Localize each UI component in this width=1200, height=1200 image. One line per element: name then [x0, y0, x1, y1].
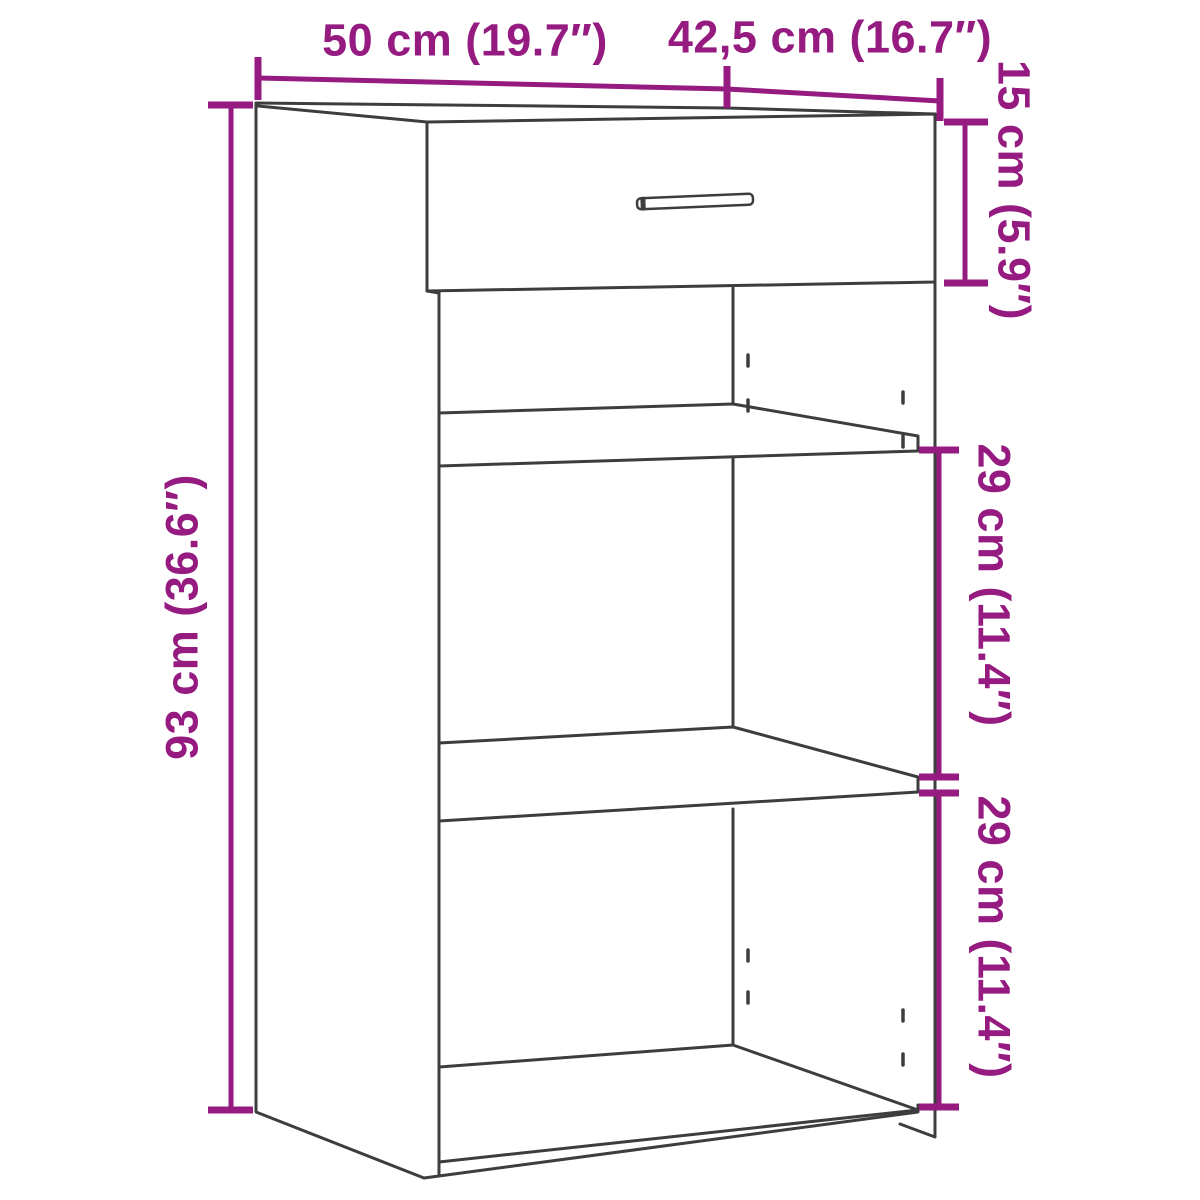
shelf-lower: [439, 727, 918, 821]
dimension-shelf-space-lower: [919, 793, 959, 1107]
cabinet-top-front-edge: [258, 106, 427, 122]
dimension-label-shelf-space-upper: 29 cm (11.4″): [969, 443, 1020, 726]
dimension-shelf-space-upper: [919, 450, 959, 777]
dimension-label-depth: 42,5 cm (16.7″): [668, 12, 992, 63]
dimension-label-total-height: 93 cm (36.6″): [157, 474, 208, 760]
dimension-line: [258, 78, 727, 89]
cabinet-left-panel: [256, 103, 424, 1178]
dimension-label-shelf-space-lower: 29 cm (11.4″): [969, 795, 1020, 1078]
cabinet-dimension-diagram: 50 cm (19.7″) 42,5 cm (16.7″) 15 cm (5.9…: [0, 0, 1200, 1200]
dimension-drawer-height: [944, 122, 988, 283]
cabinet-top-back-edge: [256, 103, 935, 114]
shelf-upper: [439, 404, 918, 466]
cabinet-drawing: [256, 103, 935, 1178]
dimension-label-width: 50 cm (19.7″): [322, 15, 608, 66]
shelf-pin-holes: [748, 355, 903, 1065]
dimension-line: [727, 89, 940, 101]
dimension-label-drawer-height: 15 cm (5.9″): [989, 60, 1040, 320]
diagram-canvas: 50 cm (19.7″) 42,5 cm (16.7″) 15 cm (5.9…: [0, 0, 1200, 1200]
dimension-total-height: [208, 105, 253, 1110]
